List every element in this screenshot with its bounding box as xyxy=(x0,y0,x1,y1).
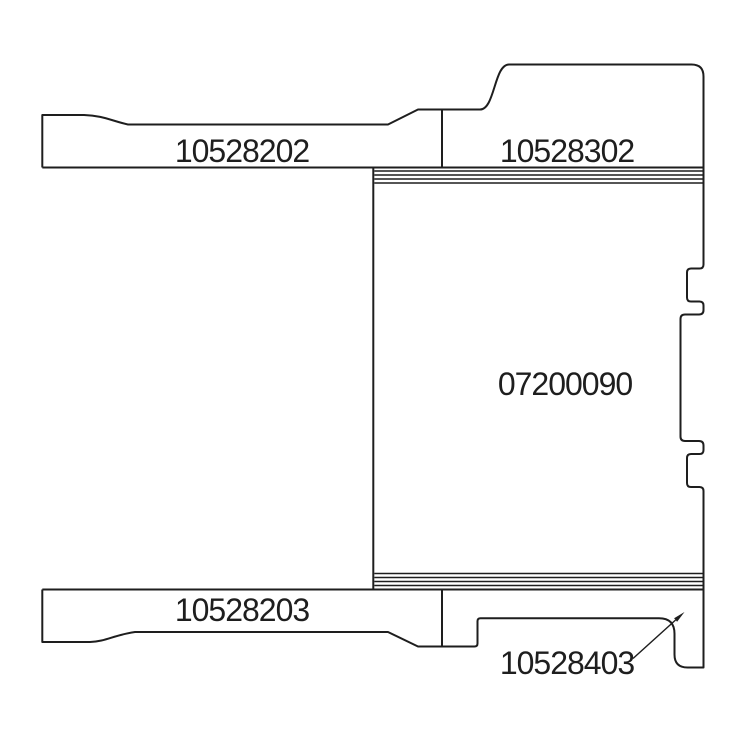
part-label-lower-left: 10528203 xyxy=(175,592,310,628)
diagram-canvas: 10528202 10528302 07200090 10528203 1052… xyxy=(0,0,750,750)
body-right-profile xyxy=(681,168,704,590)
part-label-center: 07200090 xyxy=(498,366,633,402)
top-ring-lines xyxy=(374,171,703,183)
part-label-upper-right: 10528302 xyxy=(500,133,635,169)
part-label-upper-left: 10528202 xyxy=(175,133,310,169)
parts-diagram: 10528202 10528302 07200090 10528203 1052… xyxy=(0,0,750,750)
part-label-lower-right: 10528403 xyxy=(500,645,635,681)
leader-line xyxy=(633,620,676,659)
bottom-ring-lines xyxy=(374,574,703,586)
